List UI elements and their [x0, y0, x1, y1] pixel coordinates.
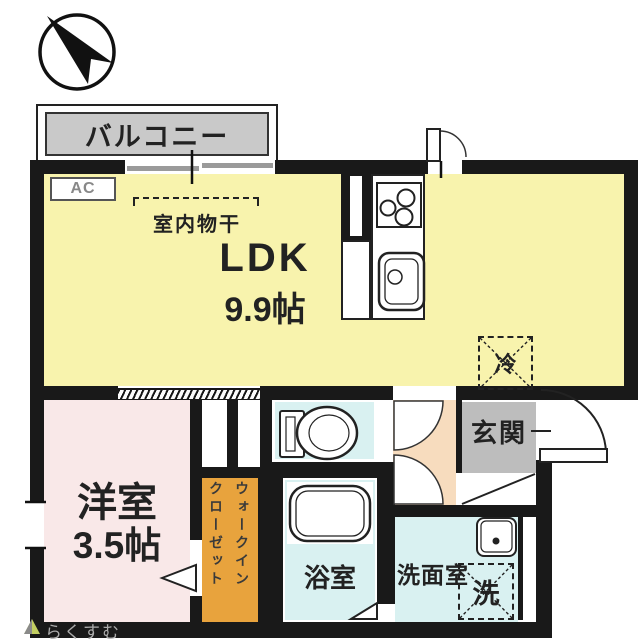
toilet-room — [272, 399, 377, 462]
wall-left-upper — [30, 160, 44, 503]
wall-bath-left — [258, 476, 283, 622]
walk-in-closet-label: ウォークイン クローゼット — [205, 481, 255, 621]
drying-pole-label: 室内物干 — [134, 208, 260, 237]
wall-closet-top — [202, 467, 260, 478]
western-room-window — [30, 503, 44, 547]
wall-ldk-bottom-a — [30, 386, 118, 400]
entrance-step-area — [462, 473, 536, 505]
ac-box: AC — [50, 177, 116, 201]
pipe-space — [523, 517, 536, 620]
washroom-label: 洗面室 — [385, 556, 481, 590]
kitchen-counter — [371, 174, 425, 320]
wall-entrance-right — [536, 460, 552, 638]
wall-top-mid — [275, 160, 428, 174]
entrance-door-icon — [531, 390, 607, 462]
watermark-label: らくすむ — [45, 623, 121, 640]
balcony-window-pane-left — [127, 166, 199, 171]
bathtub-platform — [287, 482, 373, 544]
wall-toilet-left — [260, 386, 272, 476]
ldk-label: LDK — [165, 236, 365, 281]
wall-right — [624, 160, 638, 400]
closet-door-gap — [190, 540, 202, 596]
wall-washer-strip — [518, 517, 523, 620]
ldk-size-label: 9.9帖 — [165, 282, 365, 331]
walk-in-closet-label-line2: クローゼット — [203, 481, 229, 621]
wall-ldk-bottom-b — [263, 386, 393, 400]
compass-icon — [40, 15, 114, 89]
bathroom-label: 浴室 — [283, 558, 377, 595]
balcony-label: バルコニー — [85, 115, 229, 154]
fridge-box: 冷 — [478, 336, 533, 390]
wall-top-left — [30, 160, 125, 174]
kitchen-door-icon — [427, 129, 466, 178]
ac-label: AC — [70, 180, 95, 198]
watermark: らくすむ — [45, 618, 121, 640]
wall-toilet-bottom — [272, 462, 395, 478]
wall-closet-panel-divider — [227, 399, 238, 467]
kitchen-partition-slot — [350, 176, 362, 236]
hallway — [393, 386, 456, 505]
walk-in-closet-label-line1: ウォークイン — [229, 481, 255, 621]
drying-pole-bracket — [133, 197, 259, 206]
wall-washroom-top — [383, 505, 536, 517]
balcony-label-box: バルコニー — [45, 112, 269, 156]
fridge-label: 冷 — [494, 347, 516, 379]
western-room-size-label: 3.5帖 — [44, 515, 190, 569]
hallway-top-opening — [393, 386, 456, 400]
floor-plan: バルコニー 冷 洗 — [0, 0, 640, 640]
wall-top-right — [462, 160, 638, 174]
balcony-window-pane-right — [202, 163, 273, 168]
entrance-label: 玄関 — [462, 413, 536, 450]
